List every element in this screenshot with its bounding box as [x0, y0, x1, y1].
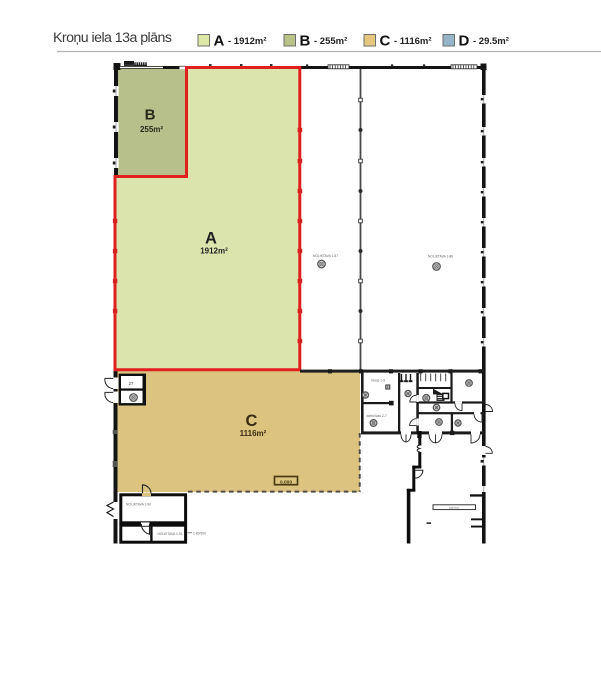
svg-text:darbnīcas 2-7: darbnīcas 2-7 — [367, 414, 387, 418]
svg-text:- 29.5m²: - 29.5m² — [473, 36, 509, 47]
svg-text:birojs 1-9: birojs 1-9 — [372, 379, 386, 383]
svg-text:NOLIKTAVA 1-87: NOLIKTAVA 1-87 — [313, 254, 338, 258]
svg-text:pandus: pandus — [449, 506, 459, 510]
svg-text:NOLIKTAVA 1-91: NOLIKTAVA 1-91 — [158, 532, 183, 536]
svg-text:C: C — [246, 412, 258, 430]
svg-text:D: D — [459, 33, 470, 50]
svg-text:A: A — [205, 230, 217, 248]
svg-text:0.000: 0.000 — [280, 479, 292, 485]
svg-text:1912m²: 1912m² — [200, 247, 228, 256]
svg-text:B: B — [300, 33, 311, 50]
svg-text:B: B — [145, 107, 156, 124]
svg-text:- 255m²: - 255m² — [314, 36, 347, 47]
svg-text:NOLIKTAVA 1-88: NOLIKTAVA 1-88 — [428, 255, 453, 259]
svg-text:Kroņu iela 13a plāns: Kroņu iela 13a plāns — [53, 30, 172, 46]
svg-text:27: 27 — [129, 381, 134, 386]
svg-text:255m²: 255m² — [140, 125, 163, 134]
svg-text:1-89/300: 1-89/300 — [193, 532, 206, 536]
svg-text:1116m²: 1116m² — [240, 429, 267, 438]
svg-text:C: C — [380, 33, 391, 50]
svg-text:A: A — [214, 33, 225, 50]
svg-text:- 1116m²: - 1116m² — [394, 36, 432, 47]
svg-text:- 1912m²: - 1912m² — [228, 36, 267, 47]
svg-text:NOLIKTAVA 1-90: NOLIKTAVA 1-90 — [126, 503, 151, 507]
